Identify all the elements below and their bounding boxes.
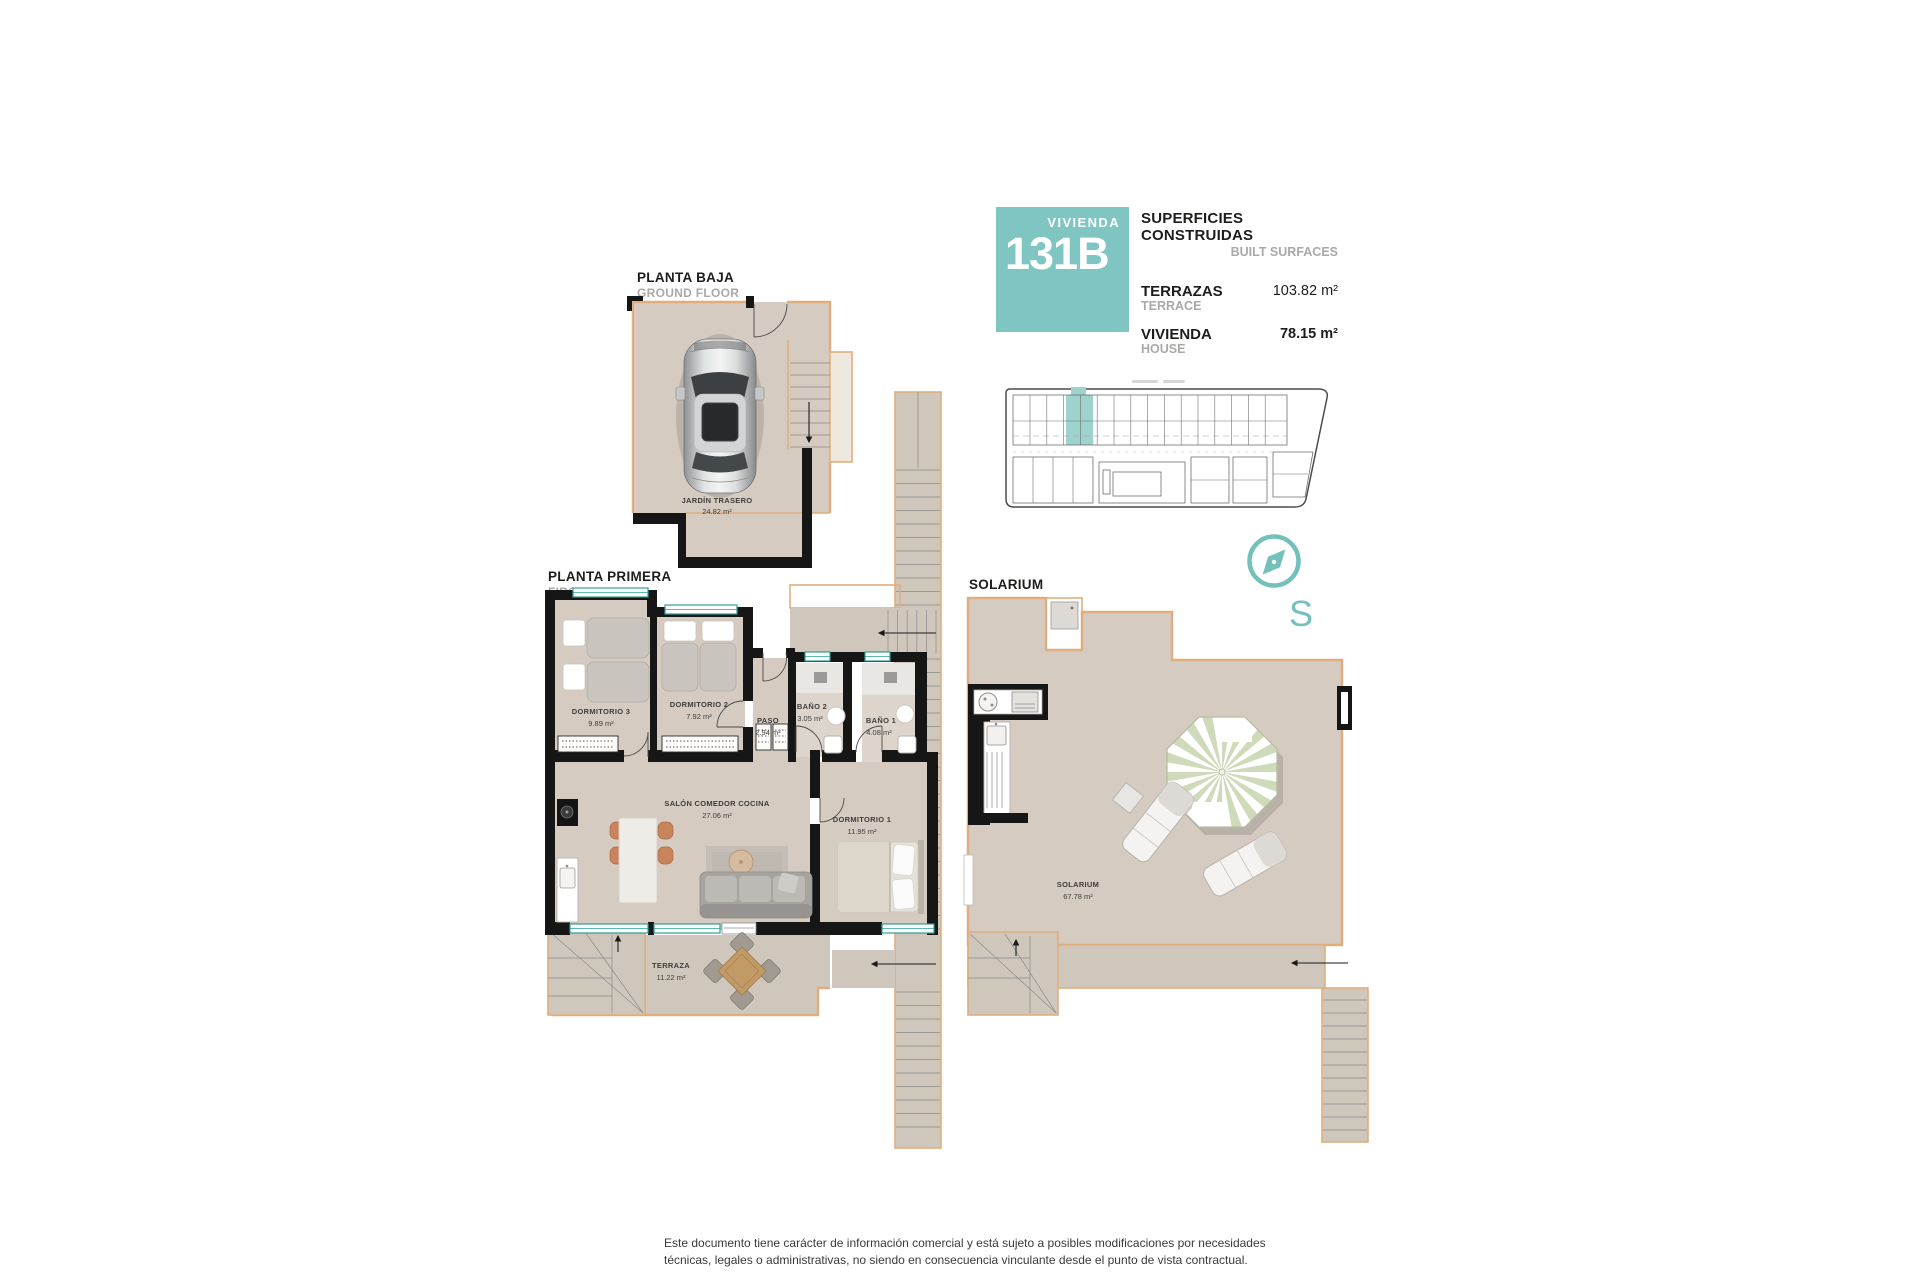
car-mirror	[676, 387, 685, 400]
compass-icon: S	[1250, 537, 1314, 635]
room-area: 11.95 m²	[847, 827, 877, 836]
room-area: 4.08 m²	[866, 728, 892, 737]
kitchen	[557, 799, 578, 922]
room-area: 3.05 m²	[797, 714, 823, 723]
disclaimer: Este documento tiene carácter de informa…	[664, 1235, 1312, 1269]
room-label: DORMITORIO 2	[670, 700, 728, 709]
plans-canvas: JARDÍN TRASERO 24.82 m²	[0, 0, 1920, 1280]
room-area: 67.78 m²	[1063, 892, 1093, 901]
terrace-door	[722, 923, 756, 934]
descending-stairs	[1322, 988, 1368, 1142]
first-floor-plan: DORMITORIO 3 9.89 m² DORMITORIO 2 7.92 m…	[545, 585, 940, 1015]
room-area: 9.89 m²	[588, 719, 614, 728]
room-label: PASO	[757, 716, 779, 725]
room-label: SOLARIUM	[1057, 880, 1099, 889]
disclaimer-line: técnicas, legales o administrativas, no …	[664, 1252, 1312, 1269]
winder-stairs	[548, 930, 645, 1015]
room-area: 11.22 m²	[656, 973, 686, 982]
room-label: SALÓN COMEDOR COCINA	[664, 799, 769, 808]
floorplan-sheet: VIVIENDA 131B SUPERFICIES CONSTRUIDAS BU…	[0, 0, 1920, 1280]
compass-south-label: S	[1289, 593, 1313, 634]
ground-floor-plan: JARDÍN TRASERO 24.82 m²	[627, 296, 852, 568]
room-area: 7.92 m²	[686, 712, 712, 721]
room-area: 27.06 m²	[702, 811, 732, 820]
room-label: BAÑO 2	[797, 702, 827, 711]
disclaimer-line: Este documento tiene carácter de informa…	[664, 1235, 1312, 1252]
car-mirror	[755, 387, 764, 400]
winder-stairs	[968, 932, 1058, 1015]
car-sunroof	[702, 403, 738, 441]
highlighted-unit	[1066, 395, 1093, 445]
room-label: JARDÍN TRASERO	[682, 496, 753, 505]
room-label: TERRAZA	[652, 961, 690, 970]
bed	[838, 840, 924, 914]
room-area: 24.82 m²	[702, 507, 732, 516]
room-label: DORMITORIO 3	[572, 707, 630, 716]
room-area: 2.94 m²	[755, 728, 781, 737]
sofa	[700, 872, 812, 918]
solarium-plan: SOLARIUM 67.78 m²	[964, 598, 1368, 1142]
car-top-view	[676, 334, 764, 498]
site-plan	[1006, 380, 1327, 507]
room-label: BAÑO 1	[866, 716, 896, 725]
room-label: DORMITORIO 1	[833, 815, 891, 824]
